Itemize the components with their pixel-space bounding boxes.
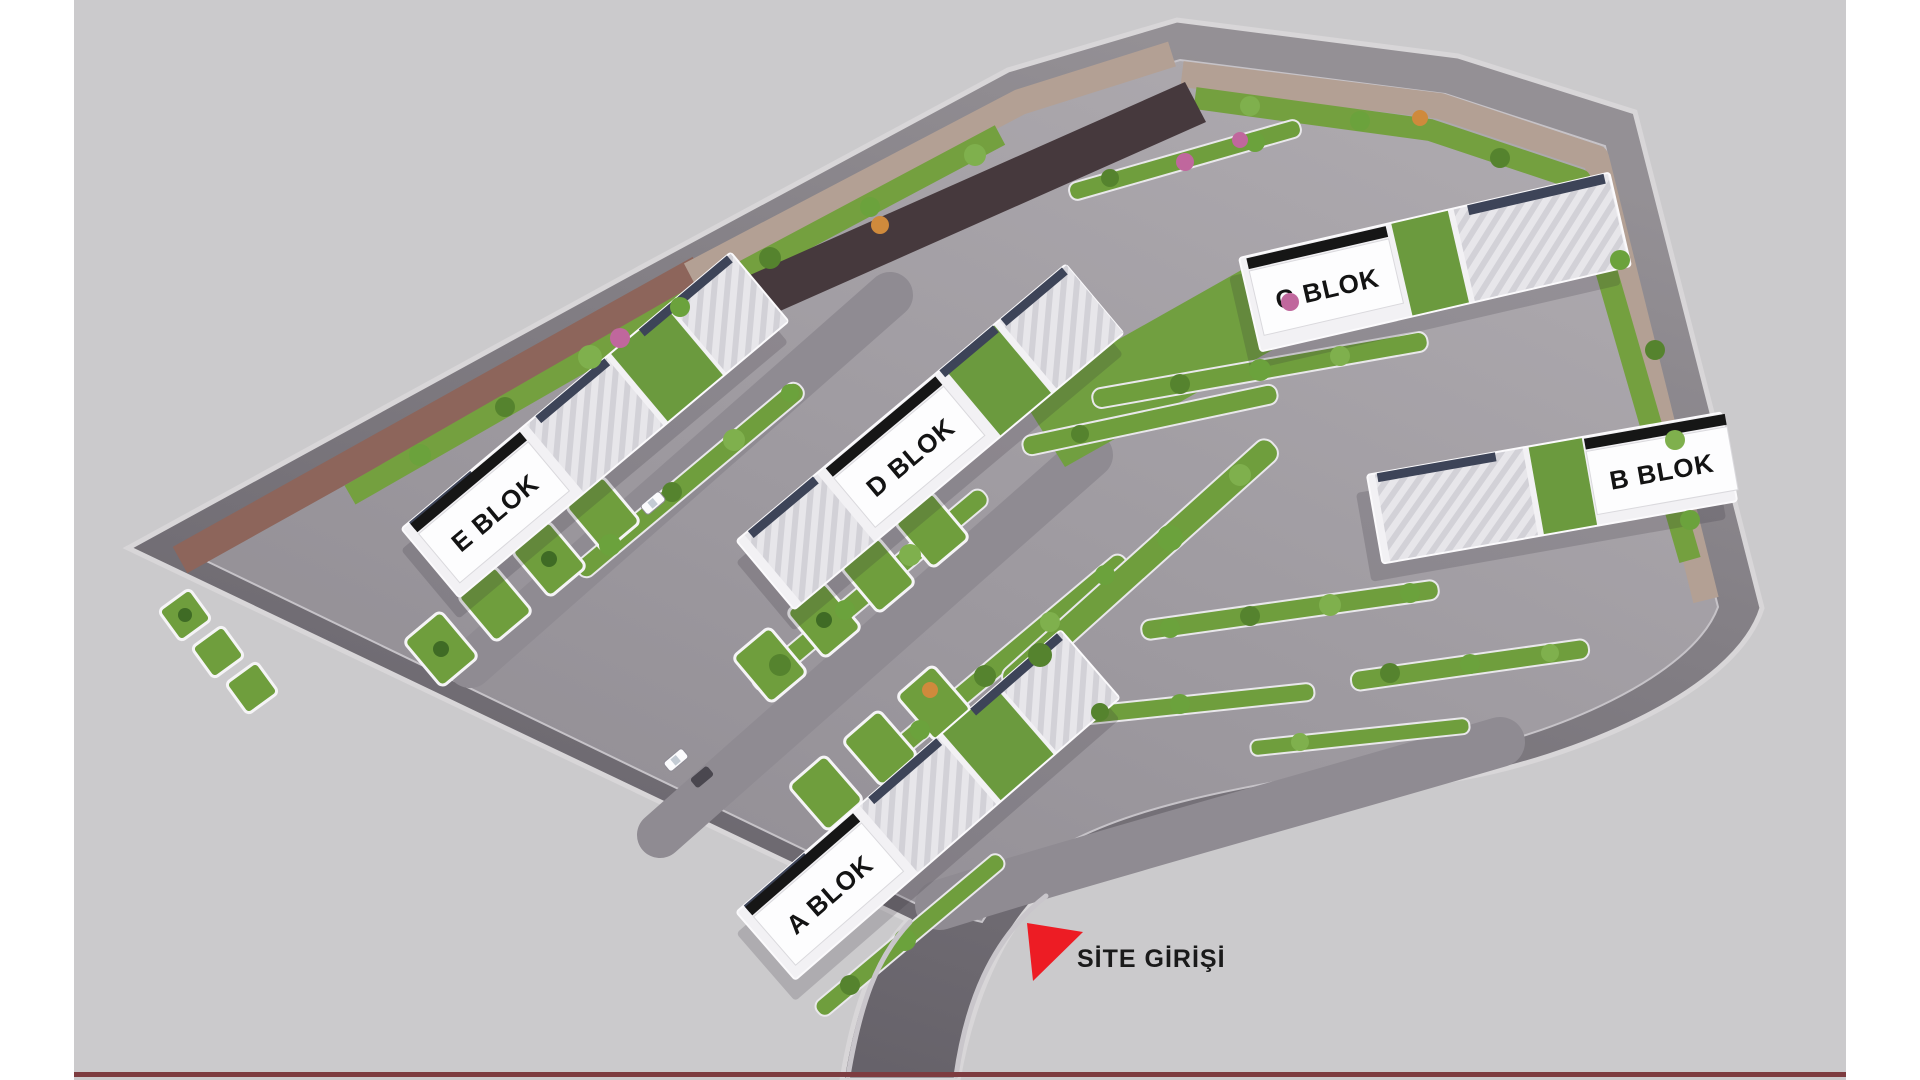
- flower-bush-pink: [1281, 293, 1299, 311]
- tree: [1028, 643, 1052, 667]
- tree: [860, 197, 880, 217]
- tree: [964, 144, 986, 166]
- tree: [1170, 694, 1190, 714]
- tree: [781, 384, 799, 402]
- tree: [1101, 169, 1119, 187]
- tree: [1645, 340, 1665, 360]
- flower-bush-orange: [871, 216, 889, 234]
- shrub: [541, 551, 557, 567]
- flower-bush-orange: [922, 682, 938, 698]
- flower-bush-pink: [610, 328, 630, 348]
- tree: [495, 397, 515, 417]
- tree: [1229, 464, 1251, 486]
- tree: [670, 297, 690, 317]
- tree: [1541, 644, 1559, 662]
- tree: [835, 600, 855, 620]
- tree: [1095, 565, 1115, 585]
- tree: [769, 654, 791, 676]
- tree: [1160, 618, 1180, 638]
- tree: [1350, 111, 1370, 131]
- tree: [974, 665, 996, 687]
- tree: [1460, 654, 1480, 674]
- site-plan-render: E BLOK D BLOK A BLOK C: [0, 0, 1920, 1080]
- flower-bush-pink: [1232, 132, 1248, 148]
- tree: [578, 345, 602, 369]
- tree: [840, 975, 860, 995]
- tree: [910, 720, 930, 740]
- tree: [1610, 250, 1630, 270]
- tree: [1330, 346, 1350, 366]
- tree: [1680, 510, 1700, 530]
- shrub: [433, 641, 449, 657]
- footer-line: [74, 1072, 1846, 1077]
- tree: [1380, 663, 1400, 683]
- entrance-label: SİTE GİRİŞİ: [1077, 945, 1226, 973]
- flower-bush-orange: [1412, 110, 1428, 126]
- tree: [1157, 525, 1183, 551]
- tree: [1091, 703, 1109, 721]
- tree: [723, 429, 745, 451]
- tree: [1249, 359, 1271, 381]
- tree: [759, 247, 781, 269]
- flower-bush-pink: [1176, 153, 1194, 171]
- site-plan-page: E BLOK D BLOK A BLOK C: [0, 0, 1920, 1080]
- tree: [1245, 132, 1265, 152]
- tree: [1240, 96, 1260, 116]
- shrub: [816, 612, 832, 628]
- tree: [1071, 425, 1089, 443]
- tree: [1040, 612, 1060, 632]
- tree: [1170, 374, 1190, 394]
- tree: [1400, 583, 1420, 603]
- tree: [1490, 148, 1510, 168]
- tree: [1291, 733, 1309, 751]
- tree: [1240, 606, 1260, 626]
- shrub: [178, 608, 192, 622]
- tree: [409, 444, 431, 466]
- tree: [899, 544, 921, 566]
- tree: [1319, 594, 1341, 616]
- tree: [599, 534, 621, 556]
- tree: [1665, 430, 1685, 450]
